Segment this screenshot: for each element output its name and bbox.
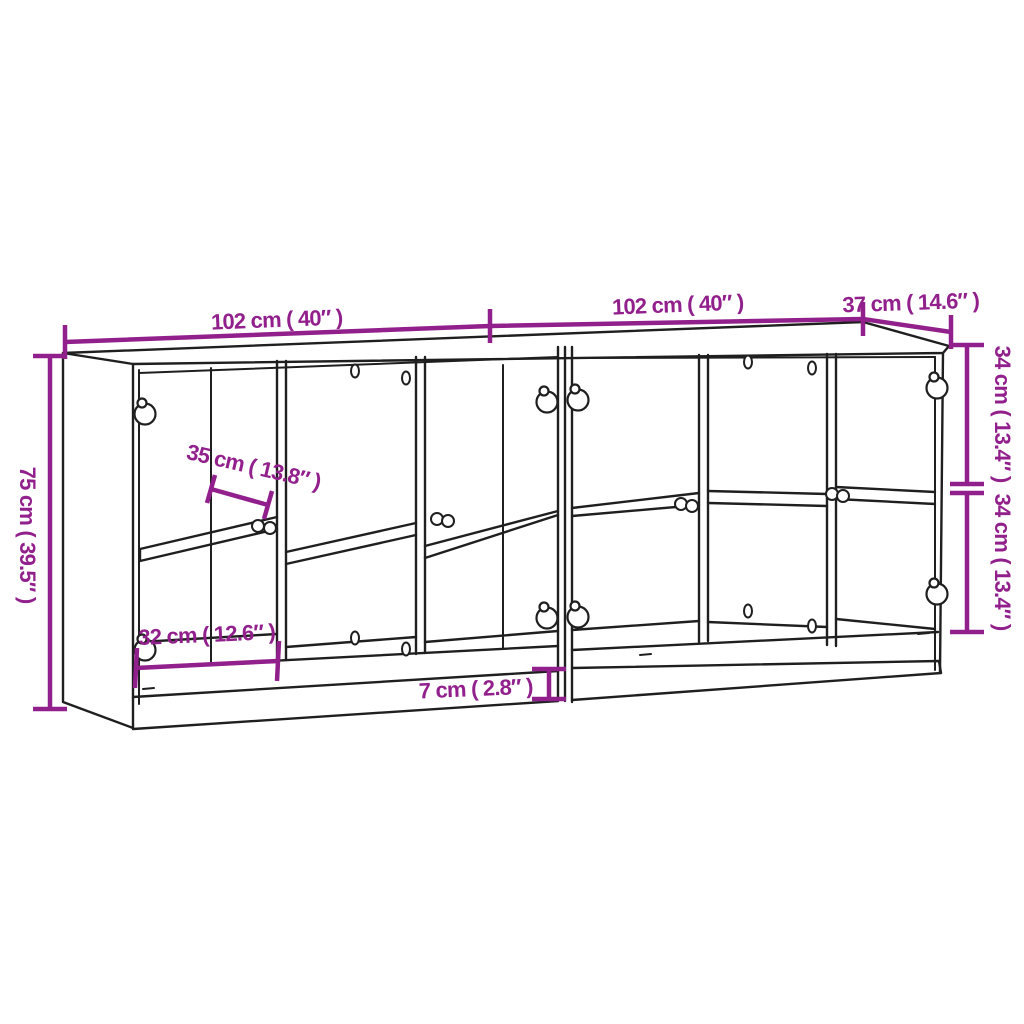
shelf-pin-icon bbox=[837, 490, 849, 502]
knob-stem-icon bbox=[571, 602, 580, 611]
label-depth: 37 cm ( 14.6″ ) bbox=[842, 288, 980, 318]
label-width-left-unit: 102 cm ( 40″ ) bbox=[211, 304, 344, 334]
shelf-pin-icon bbox=[686, 500, 698, 512]
divider-1 bbox=[277, 361, 286, 661]
dimension-ticks-total-width bbox=[65, 302, 951, 359]
hole-icon bbox=[808, 362, 816, 375]
diagram-canvas: 102 cm ( 40″ ) 102 cm ( 40″ ) 37 cm ( 14… bbox=[0, 0, 1024, 1024]
shelf-pin-icon bbox=[264, 522, 276, 534]
dimension-line-shelf-depth bbox=[211, 489, 268, 505]
label-plinth-height: 7 cm ( 2.8″ ) bbox=[418, 674, 533, 704]
shelf-pin-icon bbox=[431, 513, 443, 525]
furniture-dimension-diagram: 102 cm ( 40″ ) 102 cm ( 40″ ) 37 cm ( 14… bbox=[0, 0, 1024, 1024]
label-compartment-width: 32 cm ( 12.6″ ) bbox=[138, 619, 276, 650]
knob-stem-icon bbox=[138, 399, 147, 408]
hole-icon bbox=[351, 365, 359, 378]
shelf-pins bbox=[252, 488, 849, 534]
cabinet-drawing bbox=[63, 322, 949, 729]
dimension-line-compartment-width bbox=[136, 661, 278, 668]
label-upper-section-height: 34 cm ( 13.4″ ) bbox=[990, 346, 1015, 483]
knob-stem-icon bbox=[540, 603, 549, 612]
shelf-pin-icon bbox=[442, 515, 454, 527]
label-width-right-unit: 102 cm ( 40″ ) bbox=[612, 289, 745, 319]
hole-icon bbox=[808, 620, 816, 633]
right-edge bbox=[940, 353, 943, 672]
label-shelf-depth: 35 cm ( 13.8″ ) bbox=[184, 439, 323, 494]
hole-icon bbox=[744, 356, 752, 369]
knob-stem-icon bbox=[571, 385, 580, 394]
knob-stem-icon bbox=[930, 579, 939, 588]
hole-icon bbox=[402, 643, 410, 656]
knob-stem-icon bbox=[540, 387, 549, 396]
hole-icon bbox=[744, 605, 752, 618]
shelf-pin-icon bbox=[675, 498, 687, 510]
knob-stem-icon bbox=[930, 373, 939, 382]
hole-icon bbox=[351, 632, 359, 645]
label-lower-section-height: 34 cm ( 13.4″ ) bbox=[990, 494, 1015, 631]
label-height: 75 cm ( 39.5″ ) bbox=[15, 467, 40, 604]
divider-3 bbox=[699, 355, 708, 642]
left-side-panel bbox=[63, 353, 133, 728]
hole-icon bbox=[402, 372, 410, 385]
shelf-pin-icon bbox=[826, 488, 838, 500]
shelf-pin-icon bbox=[252, 520, 264, 532]
dimension-line-total-width bbox=[65, 319, 951, 342]
divider-2 bbox=[416, 357, 425, 654]
